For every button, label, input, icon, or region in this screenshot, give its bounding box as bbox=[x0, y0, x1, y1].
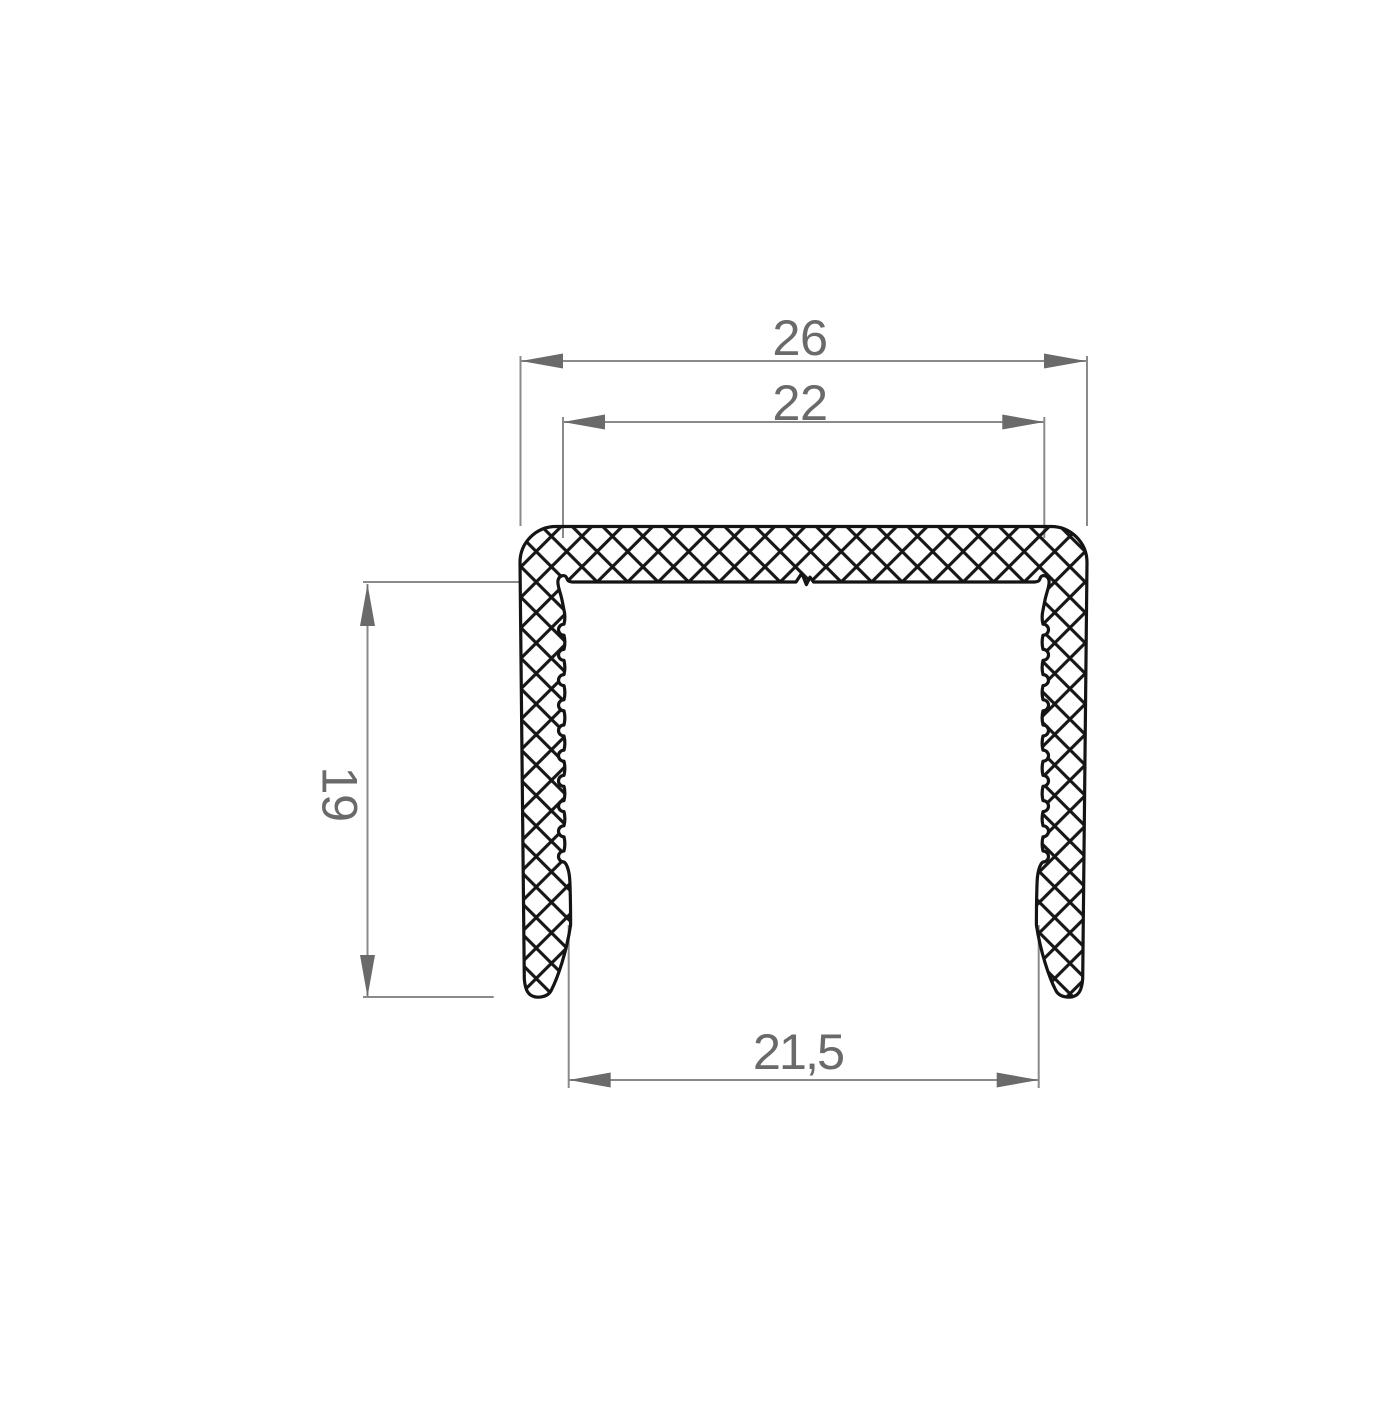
svg-text:21,5: 21,5 bbox=[753, 1023, 843, 1080]
svg-text:26: 26 bbox=[772, 309, 827, 366]
svg-text:22: 22 bbox=[772, 374, 827, 431]
svg-text:19: 19 bbox=[312, 766, 369, 821]
